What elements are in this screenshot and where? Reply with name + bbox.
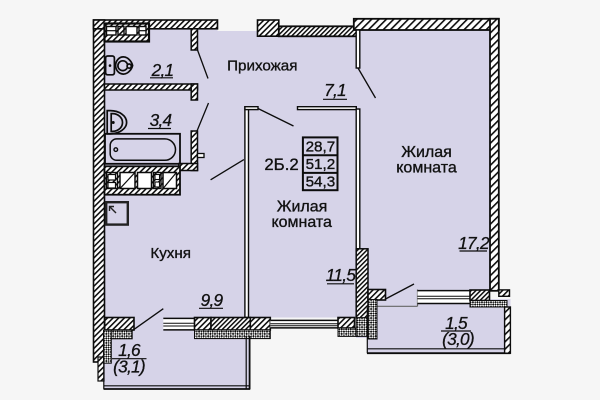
svg-text:Прихожая: Прихожая	[227, 58, 297, 75]
svg-text:Кухня: Кухня	[150, 245, 191, 262]
svg-text:(3,0): (3,0)	[442, 329, 474, 349]
svg-text:комната: комната	[271, 214, 332, 231]
svg-text:11,5: 11,5	[326, 265, 357, 285]
svg-text:7,1: 7,1	[324, 80, 346, 100]
svg-text:54,3: 54,3	[306, 174, 336, 191]
svg-text:2Б.2: 2Б.2	[264, 155, 298, 174]
svg-text:3,4: 3,4	[150, 110, 172, 130]
svg-text:2,1: 2,1	[151, 60, 174, 80]
svg-text:комната: комната	[396, 160, 457, 177]
svg-text:(3,1): (3,1)	[113, 357, 145, 377]
svg-text:9,9: 9,9	[201, 290, 224, 310]
svg-text:51,2: 51,2	[306, 156, 336, 173]
svg-text:28,7: 28,7	[306, 139, 336, 156]
svg-text:17,2: 17,2	[458, 233, 490, 253]
svg-text:Жилая: Жилая	[277, 198, 328, 215]
